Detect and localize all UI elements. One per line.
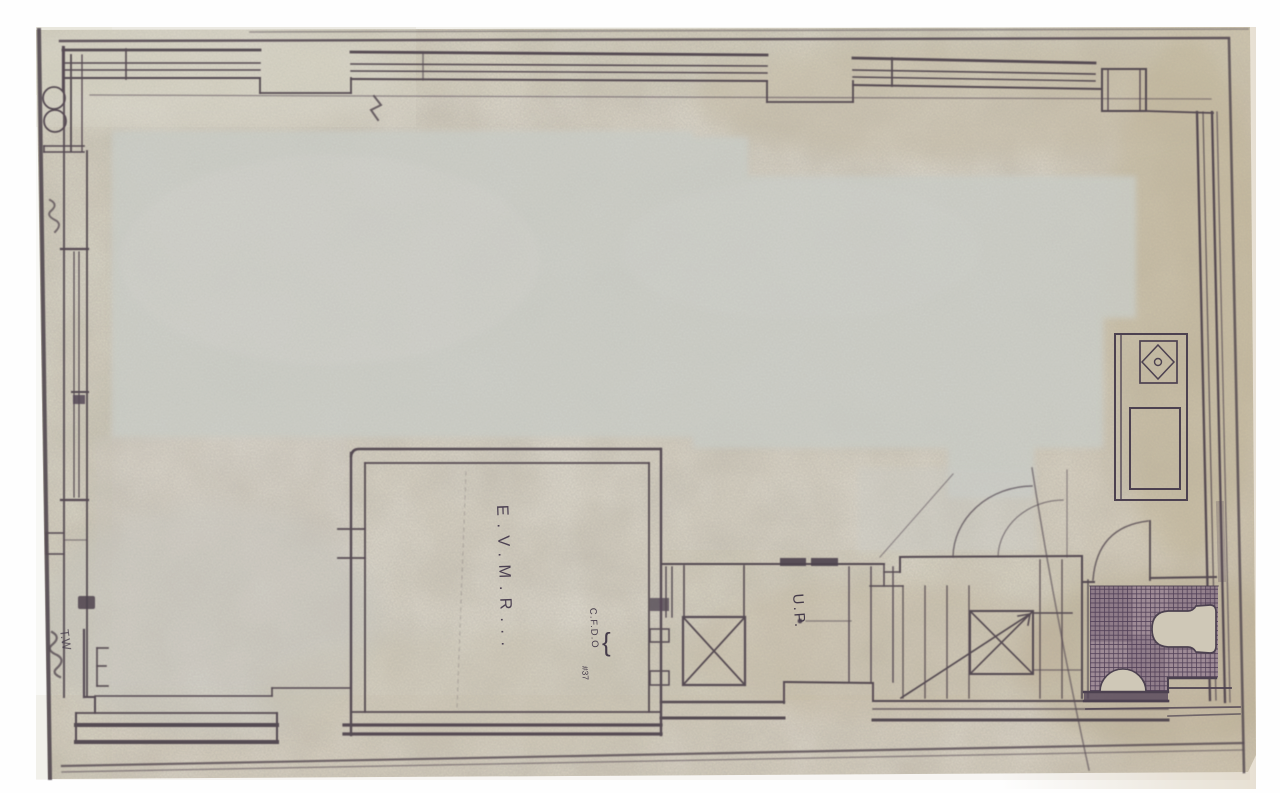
svg-text:T.W: T.W (57, 628, 74, 651)
svg-text:#37: #37 (580, 666, 591, 681)
svg-text:U.P.: U.P. (789, 593, 808, 629)
svg-text:{: { (602, 627, 611, 657)
svg-text:C.F.D.O: C.F.D.O (587, 608, 600, 649)
